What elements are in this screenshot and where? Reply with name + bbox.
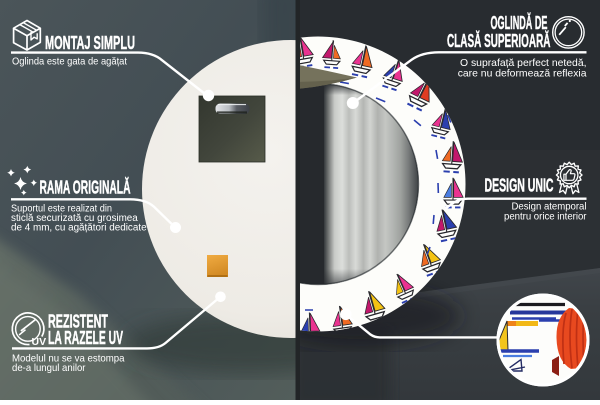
svg-text:MONTAJ SIMPLU: MONTAJ SIMPLU [45,33,135,53]
svg-text:CLASĂ SUPERIOARĂ: CLASĂ SUPERIOARĂ [447,30,551,51]
svg-text:de 4 mm, cu agățători dedicate: de 4 mm, cu agățători dedicate [11,222,147,233]
svg-text:LA RAZELE UV: LA RAZELE UV [48,328,123,348]
svg-text:Oglinda este gata de agățat: Oglinda este gata de agățat [12,57,127,68]
svg-text:O suprafață perfect netedă,: O suprafață perfect netedă, [460,58,587,69]
svg-text:RAMA ORIGINALĂ: RAMA ORIGINALĂ [40,176,131,197]
svg-text:DESIGN UNIC: DESIGN UNIC [485,176,554,196]
svg-text:pentru orice interior: pentru orice interior [504,211,587,222]
svg-text:OGLINDĂ DE: OGLINDĂ DE [491,12,548,33]
svg-text:care nu deformează reflexia: care nu deformează reflexia [458,69,587,80]
svg-text:de-a lungul anilor: de-a lungul anilor [12,363,86,374]
svg-text:UV: UV [32,336,47,348]
